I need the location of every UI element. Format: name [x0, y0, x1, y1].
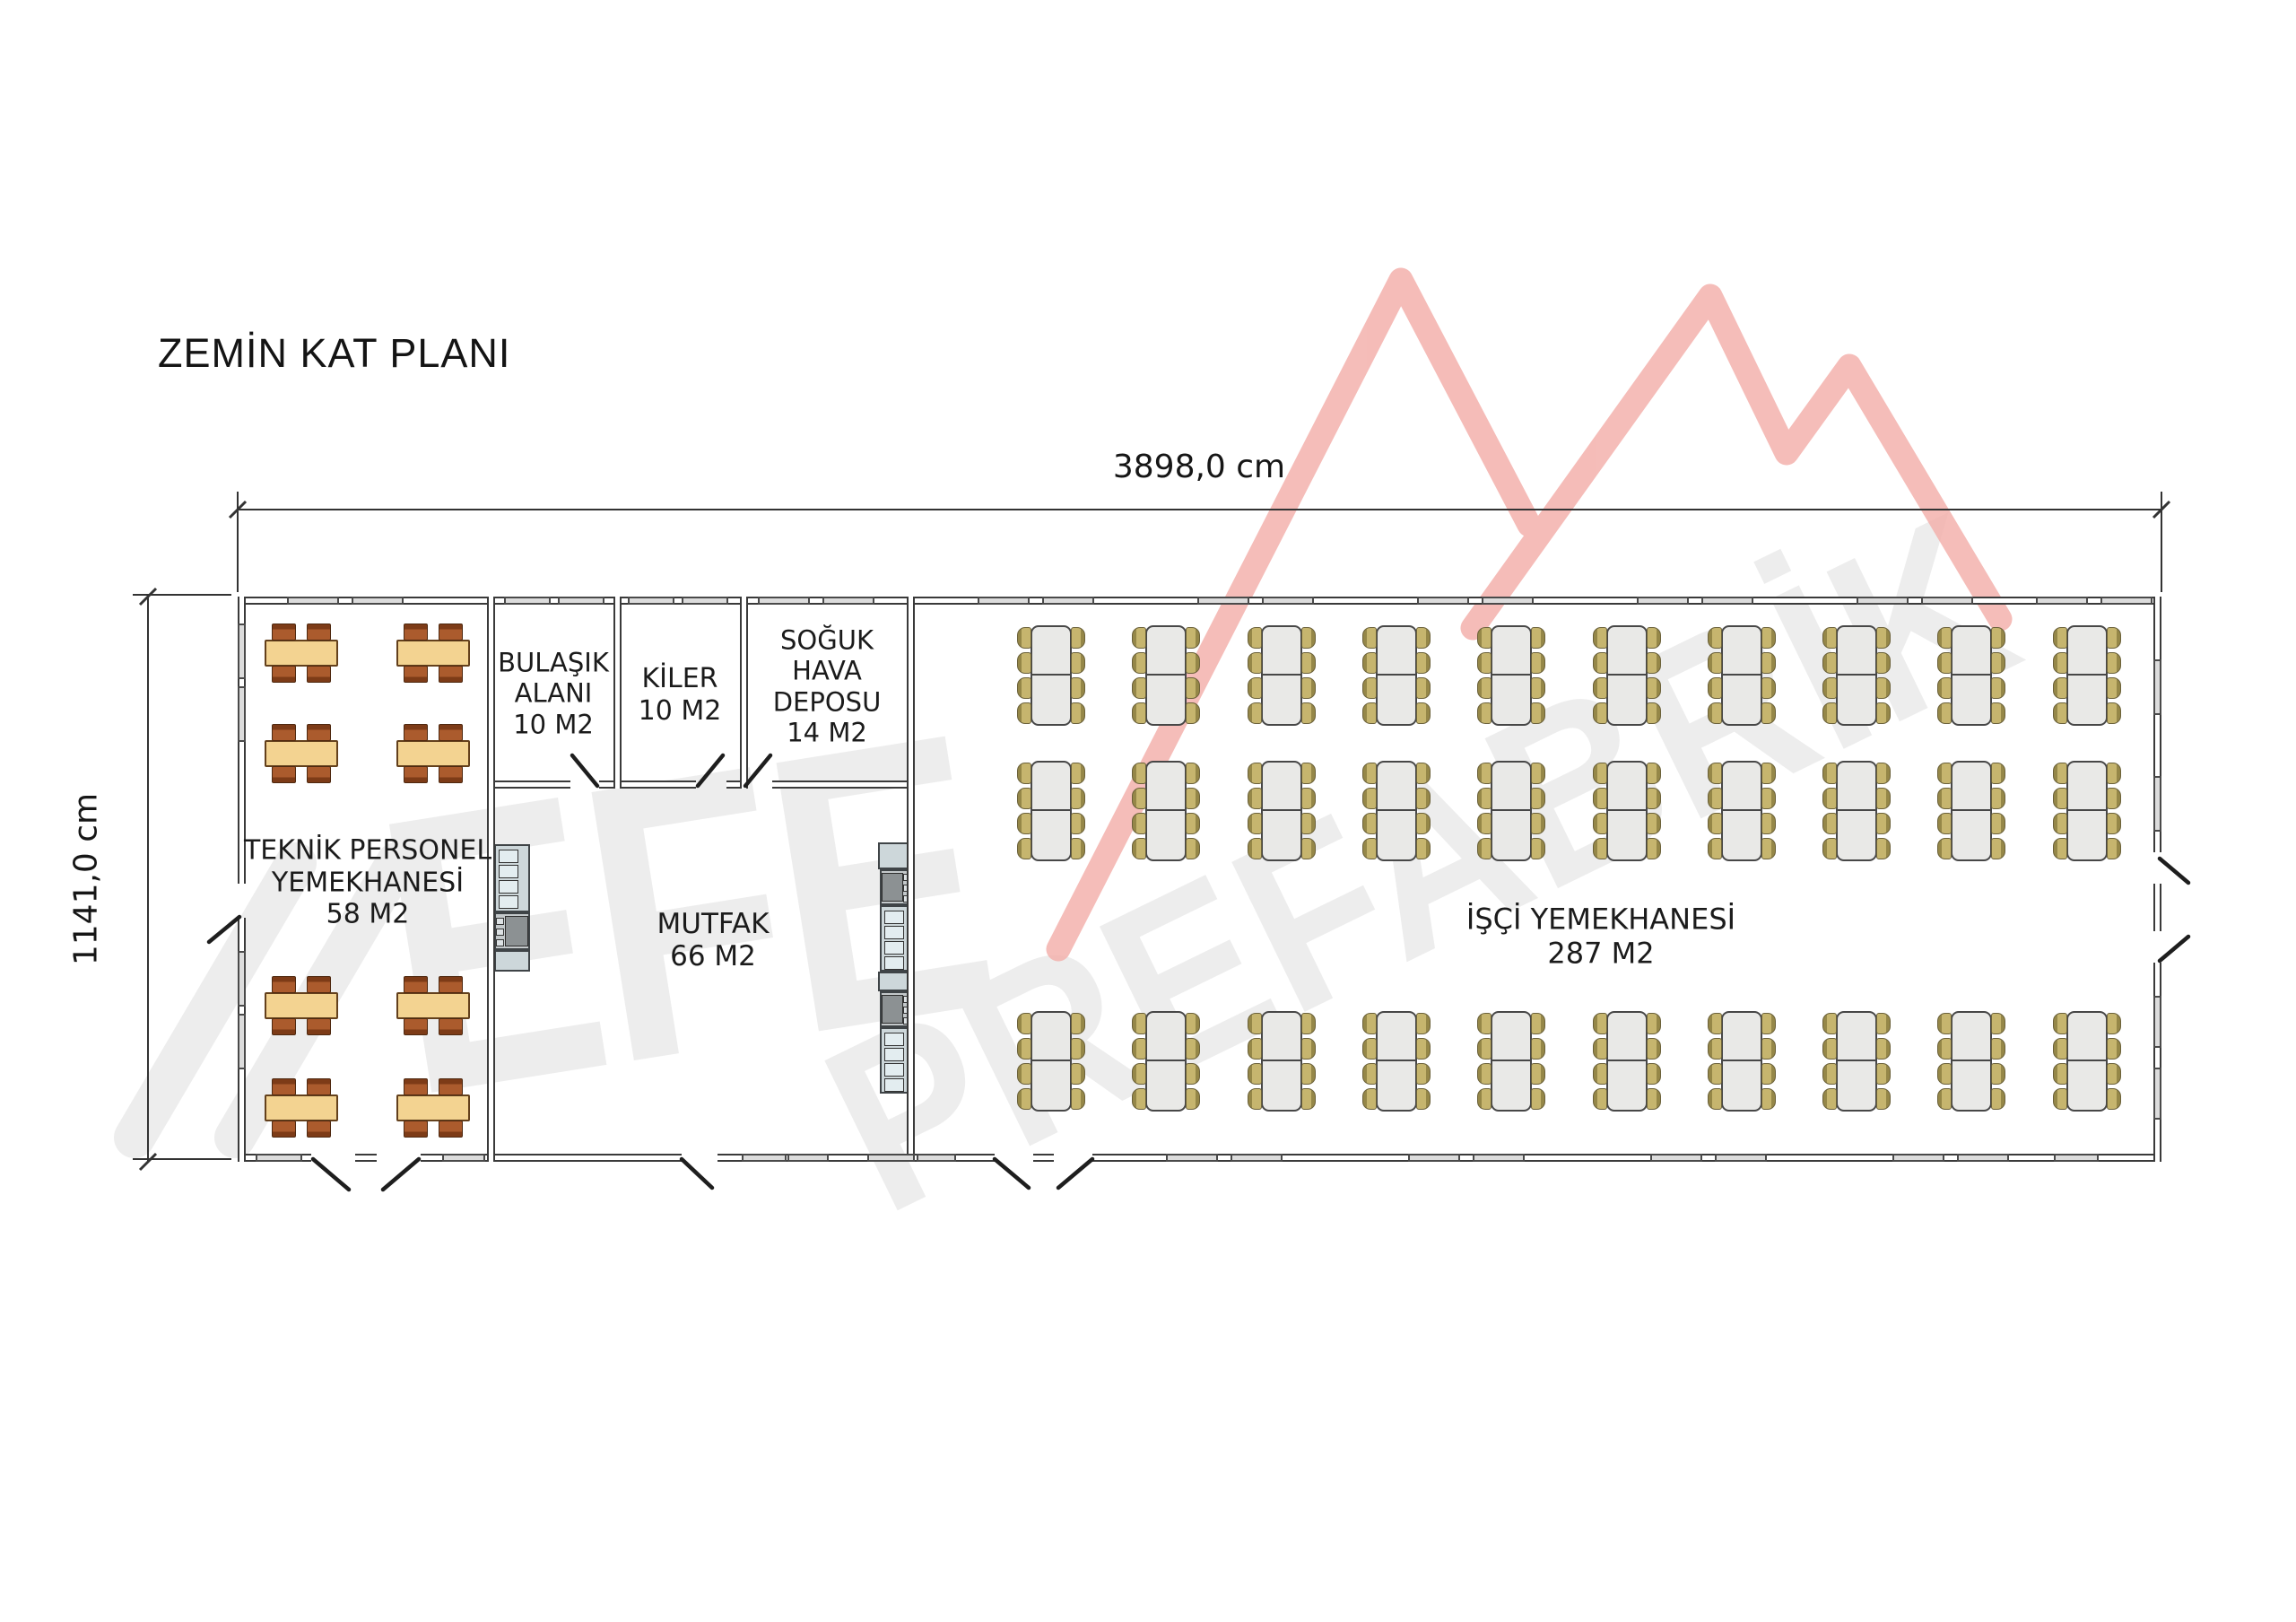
table-surface [1145, 1011, 1187, 1112]
chair-icon [1876, 788, 1891, 809]
chair-icon [1876, 627, 1891, 649]
worker-dining-table [1721, 1011, 1762, 1112]
chair-icon [1991, 763, 2005, 784]
table-surface [1836, 625, 1877, 726]
chair-icon [2053, 788, 2067, 809]
chair-icon [1991, 1088, 2005, 1110]
worker-dining-table [1145, 1011, 1187, 1112]
room-name: MUTFAK [657, 907, 770, 939]
chair-icon [307, 766, 331, 783]
worker-dining-table [1031, 761, 1072, 861]
chair-icon [1761, 627, 1776, 649]
staff-dining-table [265, 1094, 338, 1121]
chair-icon [1937, 652, 1952, 674]
chair-icon [1186, 763, 1200, 784]
chair-icon [1647, 838, 1661, 859]
chair-icon [1071, 838, 1085, 859]
chair-icon [1416, 838, 1431, 859]
chair-icon [1822, 1013, 1837, 1034]
chair-icon [404, 624, 428, 641]
staff-dining-table [265, 992, 338, 1019]
wall-right [2153, 963, 2161, 1162]
chair-icon [1531, 813, 1545, 834]
chair-icon [1937, 627, 1952, 649]
chair-icon [1186, 627, 1200, 649]
cabinet-door [884, 1048, 904, 1061]
chair-icon [1301, 627, 1316, 649]
chair-icon [1761, 1088, 1776, 1110]
window-icon [238, 1014, 246, 1069]
worker-dining-table [1145, 761, 1187, 861]
worker-dining-table [1721, 761, 1762, 861]
chair-icon [1071, 788, 1085, 809]
chair-icon [1593, 1013, 1607, 1034]
chair-icon [1531, 788, 1545, 809]
table-surface [1261, 1011, 1302, 1112]
staff-dining-table [396, 992, 470, 1019]
chair-icon [1362, 763, 1377, 784]
chair-icon [1937, 1088, 1952, 1110]
chair-icon [307, 1018, 331, 1035]
chair-icon [1477, 627, 1492, 649]
window-icon [287, 597, 339, 605]
chair-icon [1017, 788, 1031, 809]
chair-icon [404, 1078, 428, 1095]
table-surface [1951, 1011, 1992, 1112]
chair-icon [2107, 702, 2121, 724]
chair-icon [1708, 1088, 1722, 1110]
chair-icon [1822, 627, 1837, 649]
table-surface [1491, 761, 1532, 861]
room-area: 14 M2 [773, 717, 882, 747]
chair-icon [2053, 1013, 2067, 1034]
chair-icon [1761, 1038, 1776, 1060]
table-surface [396, 992, 470, 1019]
window-icon [1408, 1154, 1460, 1162]
chair-icon [1301, 677, 1316, 699]
table-surface [1261, 761, 1302, 861]
worker-dining-table [1836, 625, 1877, 726]
chair-icon [1991, 1038, 2005, 1060]
chair-icon [1132, 763, 1146, 784]
wall-service-rooms [491, 780, 570, 789]
chair-icon [1593, 1088, 1607, 1110]
chair-icon [1017, 1013, 1031, 1034]
chair-icon [1647, 652, 1661, 674]
chair-icon [307, 1078, 331, 1095]
chair-icon [404, 666, 428, 683]
chair-icon [1991, 813, 2005, 834]
chair-icon [1593, 652, 1607, 674]
chair-icon [1017, 813, 1031, 834]
chair-icon [1017, 677, 1031, 699]
chair-icon [1132, 1038, 1146, 1060]
table-surface [1606, 625, 1648, 726]
table-surface [1951, 625, 1992, 726]
chair-icon [1017, 1088, 1031, 1110]
chair-icon [1017, 838, 1031, 859]
chair-icon [2107, 677, 2121, 699]
table-surface [1261, 625, 1302, 726]
worker-dining-table [1376, 625, 1417, 726]
chair-icon [1362, 677, 1377, 699]
table-surface [1721, 1011, 1762, 1112]
chair-icon [1761, 763, 1776, 784]
floor-plan: EFE PREFABRİK [0, 0, 2296, 1622]
chair-icon [1416, 677, 1431, 699]
wall-kiler-soguk [740, 597, 748, 789]
window-icon [256, 1154, 302, 1162]
chair-icon [1761, 838, 1776, 859]
window-icon [2153, 996, 2161, 1048]
chair-icon [1477, 1013, 1492, 1034]
chair-icon [1071, 1063, 1085, 1085]
worker-dining-table [1261, 1011, 1302, 1112]
chair-icon [1477, 813, 1492, 834]
chair-icon [1132, 1088, 1146, 1110]
chair-icon [1937, 813, 1952, 834]
chair-icon [1531, 652, 1545, 674]
chair-icon [1248, 652, 1262, 674]
table-surface [1145, 761, 1187, 861]
chair-icon [439, 976, 463, 993]
chair-icon [439, 1078, 463, 1095]
chair-icon [272, 624, 296, 641]
chair-icon [1248, 813, 1262, 834]
table-surface [1721, 625, 1762, 726]
worker-dining-table [1606, 1011, 1648, 1112]
chair-icon [272, 1078, 296, 1095]
chair-icon [1761, 652, 1776, 674]
chair-icon [1416, 1038, 1431, 1060]
chair-icon [1876, 1038, 1891, 1060]
chair-icon [1416, 702, 1431, 724]
chair-icon [1362, 702, 1377, 724]
window-icon [504, 597, 551, 605]
window-icon [1482, 597, 1534, 605]
chair-icon [307, 976, 331, 993]
chair-icon [1761, 788, 1776, 809]
table-surface [1491, 1011, 1532, 1112]
chair-icon [1708, 813, 1722, 834]
window-icon [2036, 597, 2088, 605]
table-surface [1836, 761, 1877, 861]
chair-icon [2053, 813, 2067, 834]
worker-dining-table [1491, 625, 1532, 726]
chair-icon [307, 724, 331, 741]
kitchen-counter [494, 950, 530, 972]
chair-icon [1876, 702, 1891, 724]
wall-right [2153, 884, 2161, 931]
chair-icon [1186, 788, 1200, 809]
room-label-teknik: TEKNİK PERSONEL YEMEKHANESİ 58 M2 [244, 804, 491, 963]
window-icon [1957, 1154, 2009, 1162]
chair-icon [2053, 652, 2067, 674]
table-surface [265, 740, 338, 767]
chair-icon [1416, 1013, 1431, 1034]
chair-icon [439, 1018, 463, 1035]
chair-icon [1593, 813, 1607, 834]
table-surface [1031, 1011, 1072, 1112]
room-label-isci: İŞÇİ YEMEKHANESİ 287 M2 [1466, 869, 1735, 1005]
chair-icon [2053, 702, 2067, 724]
chair-icon [1416, 763, 1431, 784]
chair-icon [1647, 702, 1661, 724]
window-icon [1715, 1154, 1767, 1162]
chair-icon [1477, 838, 1492, 859]
chair-icon [2053, 677, 2067, 699]
staff-dining-table [265, 640, 338, 667]
chair-icon [1186, 838, 1200, 859]
chair-icon [2107, 652, 2121, 674]
stove-knob [496, 918, 504, 925]
chair-icon [1017, 1038, 1031, 1060]
table-surface [1606, 761, 1648, 861]
worker-dining-table [1606, 625, 1648, 726]
chair-icon [272, 666, 296, 683]
room-label-soguk: SOĞUK HAVA DEPOSU 14 M2 [773, 594, 882, 778]
chair-icon [1647, 1063, 1661, 1085]
window-icon [787, 1154, 829, 1162]
chair-icon [1362, 788, 1377, 809]
chair-icon [1186, 1063, 1200, 1085]
chair-icon [1071, 1088, 1085, 1110]
wall-mutfak-isci [907, 597, 915, 1162]
chair-icon [1822, 838, 1837, 859]
chair-icon [2107, 1038, 2121, 1060]
chair-icon [272, 976, 296, 993]
window-icon [1637, 597, 1689, 605]
chair-icon [1301, 813, 1316, 834]
chair-icon [1477, 788, 1492, 809]
chair-icon [1761, 677, 1776, 699]
chair-icon [1416, 652, 1431, 674]
chair-icon [1248, 1088, 1262, 1110]
height-dimension-label: 1141,0 cm [68, 793, 105, 965]
window-icon [1042, 597, 1094, 605]
chair-icon [2053, 1038, 2067, 1060]
chair-icon [1937, 1063, 1952, 1085]
chair-icon [1876, 1013, 1891, 1034]
chair-icon [1647, 1013, 1661, 1034]
chair-icon [1186, 1038, 1200, 1060]
chair-icon [1876, 838, 1891, 859]
chair-icon [1937, 702, 1952, 724]
chair-icon [2107, 1088, 2121, 1110]
chair-icon [1708, 838, 1722, 859]
chair-icon [1593, 627, 1607, 649]
worker-dining-table [1491, 761, 1532, 861]
chair-icon [2107, 838, 2121, 859]
chair-icon [1477, 1038, 1492, 1060]
chair-icon [1477, 652, 1492, 674]
window-icon [628, 597, 674, 605]
chair-icon [1876, 1088, 1891, 1110]
worker-dining-table [1606, 761, 1648, 861]
chair-icon [1362, 1038, 1377, 1060]
chair-icon [1477, 763, 1492, 784]
chair-icon [1362, 838, 1377, 859]
chair-icon [272, 724, 296, 741]
chair-icon [1937, 788, 1952, 809]
chair-icon [272, 766, 296, 783]
chair-icon [1248, 1013, 1262, 1034]
chair-icon [272, 1018, 296, 1035]
table-surface [396, 640, 470, 667]
cabinet-door [884, 926, 904, 939]
chair-icon [1876, 1063, 1891, 1085]
chair-icon [1761, 813, 1776, 834]
chair-icon [1876, 677, 1891, 699]
chair-icon [1301, 1063, 1316, 1085]
worker-dining-table [1951, 1011, 1992, 1112]
window-icon [682, 597, 728, 605]
chair-icon [1937, 1013, 1952, 1034]
chair-icon [1593, 677, 1607, 699]
chair-icon [1017, 702, 1031, 724]
chair-icon [1761, 702, 1776, 724]
window-icon [2100, 597, 2152, 605]
window-icon [352, 597, 404, 605]
room-area: 10 M2 [498, 709, 609, 739]
chair-icon [1301, 838, 1316, 859]
wall-bottom [355, 1154, 377, 1162]
window-icon [978, 597, 1030, 605]
chair-icon [1132, 677, 1146, 699]
worker-dining-table [1836, 1011, 1877, 1112]
worker-dining-table [1491, 1011, 1532, 1112]
chair-icon [404, 724, 428, 741]
window-icon [442, 1154, 485, 1162]
table-surface [1376, 1011, 1417, 1112]
chair-icon [1071, 627, 1085, 649]
chair-icon [1416, 627, 1431, 649]
chair-icon [1186, 702, 1200, 724]
table-surface [1376, 761, 1417, 861]
chair-icon [1876, 652, 1891, 674]
chair-icon [1477, 1063, 1492, 1085]
chair-icon [1822, 788, 1837, 809]
chair-icon [1937, 677, 1952, 699]
room-name: KİLER [641, 664, 717, 695]
chair-icon [1416, 813, 1431, 834]
chair-icon [1647, 1088, 1661, 1110]
table-surface [265, 992, 338, 1019]
chair-icon [1991, 1013, 2005, 1034]
chair-icon [439, 666, 463, 683]
chair-icon [1593, 788, 1607, 809]
chair-icon [1822, 1088, 1837, 1110]
chair-icon [1531, 702, 1545, 724]
chair-icon [1362, 1063, 1377, 1085]
cabinet-door [884, 1078, 904, 1092]
cabinet-door [884, 956, 904, 970]
chair-icon [1647, 813, 1661, 834]
chair-icon [1362, 1088, 1377, 1110]
chair-icon [1991, 627, 2005, 649]
chair-icon [404, 766, 428, 783]
window-icon [238, 624, 246, 679]
chair-icon [1301, 763, 1316, 784]
stove-knob [496, 929, 504, 936]
chair-icon [2107, 1013, 2121, 1034]
window-icon [1417, 597, 1469, 605]
chair-icon [1647, 627, 1661, 649]
chair-icon [1186, 1088, 1200, 1110]
chair-icon [1132, 1013, 1146, 1034]
window-icon [917, 1154, 956, 1162]
worker-dining-table [1031, 1011, 1072, 1112]
chair-icon [1647, 788, 1661, 809]
chair-icon [1017, 652, 1031, 674]
page-title: ZEMİN KAT PLANI [158, 330, 510, 377]
cabinet-door [499, 880, 518, 894]
chair-icon [1761, 1013, 1776, 1034]
window-icon [2153, 659, 2161, 715]
table-surface [1951, 761, 1992, 861]
table-surface [2066, 625, 2108, 726]
chair-icon [1416, 1063, 1431, 1085]
chair-icon [1991, 838, 2005, 859]
chair-icon [1071, 1013, 1085, 1034]
staff-dining-table [396, 640, 470, 667]
chair-icon [1708, 702, 1722, 724]
wall-service-rooms [772, 780, 910, 789]
chair-icon [1822, 763, 1837, 784]
chair-icon [404, 1018, 428, 1035]
chair-icon [1531, 838, 1545, 859]
chair-icon [1822, 702, 1837, 724]
worker-dining-table [1836, 761, 1877, 861]
chair-icon [1531, 1088, 1545, 1110]
room-name: BULAŞIK ALANI [498, 648, 609, 709]
chair-icon [1071, 813, 1085, 834]
chair-icon [1017, 627, 1031, 649]
cabinet-door [884, 1033, 904, 1046]
window-icon [1231, 1154, 1283, 1162]
chair-icon [2107, 627, 2121, 649]
chair-icon [1822, 1063, 1837, 1085]
chair-icon [1708, 1063, 1722, 1085]
table-surface [1606, 1011, 1648, 1112]
room-name: SOĞUK HAVA DEPOSU [773, 625, 882, 717]
chair-icon [1186, 813, 1200, 834]
chair-icon [1708, 1038, 1722, 1060]
chair-icon [1647, 763, 1661, 784]
table-surface [1145, 625, 1187, 726]
chair-icon [1876, 813, 1891, 834]
chair-icon [1822, 677, 1837, 699]
chair-icon [1071, 677, 1085, 699]
window-icon [867, 1154, 915, 1162]
chair-icon [1017, 1063, 1031, 1085]
chair-icon [1991, 652, 2005, 674]
chair-icon [1708, 1013, 1722, 1034]
table-surface [1031, 625, 1072, 726]
chair-icon [2053, 1063, 2067, 1085]
chair-icon [1593, 1038, 1607, 1060]
chair-icon [1248, 763, 1262, 784]
room-name: İŞÇİ YEMEKHANESİ [1466, 902, 1735, 936]
room-area: 287 M2 [1466, 937, 1735, 971]
chair-icon [404, 1121, 428, 1138]
chair-icon [1017, 763, 1031, 784]
worker-dining-table [1951, 625, 1992, 726]
room-label-mutfak: MUTFAK 66 M2 [657, 875, 770, 1006]
worker-dining-table [1721, 625, 1762, 726]
chair-icon [2107, 1063, 2121, 1085]
chair-icon [1991, 1063, 2005, 1085]
